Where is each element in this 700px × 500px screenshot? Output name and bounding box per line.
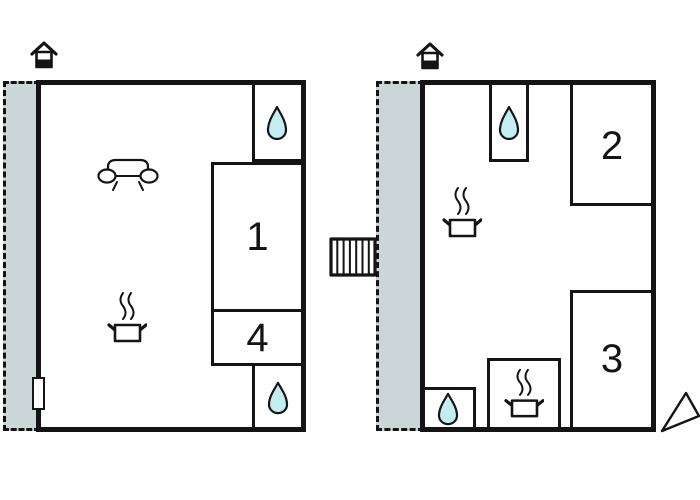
floor-plan-canvas: { "colors": { "wall": "#141414", "terrac… [0,0,700,500]
right-top-bathroom-bottom-line [489,159,529,162]
right-terrace [376,81,424,431]
room-4-bottom-line [211,363,302,366]
house-entrance-icon [30,40,58,70]
room-3-label: 3 [573,293,651,425]
room-1-label: 1 [214,166,301,308]
right-top-bathroom-right-line [526,85,529,162]
water-drop-icon [265,104,289,142]
right-bottom-bathroom-top-line [424,387,476,390]
water-drop-icon [436,391,460,427]
room-2-bottom-line [570,203,652,206]
right-top-bathroom-left-line [489,85,492,162]
cooking-pot-icon [504,366,544,418]
cooking-pot-icon [107,289,147,343]
house-entrance-icon [416,41,444,71]
water-drop-icon [497,104,521,142]
right-kitchen-left-line [487,358,490,428]
right-kitchen-top-line [487,358,561,361]
left-top-bathroom-divider-line [252,85,255,162]
room-4-label: 4 [214,312,301,363]
right-kitchen-right-line [558,358,561,428]
stairs-icon [329,237,377,277]
water-drop-icon [266,380,290,416]
room-1-top-line [211,162,302,165]
direction-arrow-icon [656,388,700,434]
sofa-icon [97,155,159,193]
left-bottom-bathroom-divider-line [252,366,255,428]
left-unit-door [32,377,45,410]
right-bottom-bathroom-right-line [473,387,476,428]
cooking-pot-icon [442,184,482,238]
room-2-label: 2 [573,89,651,203]
